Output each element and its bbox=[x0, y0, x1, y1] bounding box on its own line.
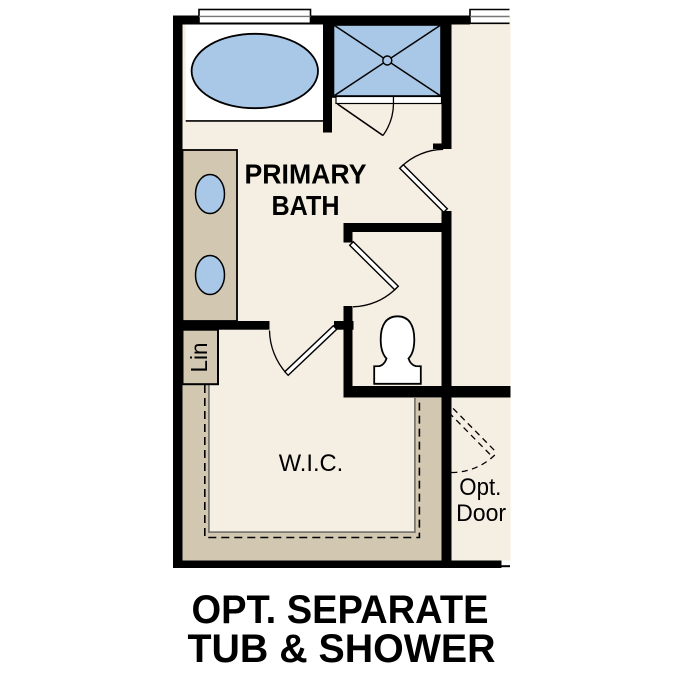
svg-text:OPT. SEPARATE: OPT. SEPARATE bbox=[192, 588, 489, 632]
svg-text:W.I.C.: W.I.C. bbox=[279, 450, 344, 477]
svg-text:PRIMARY: PRIMARY bbox=[245, 159, 367, 190]
svg-text:Opt.: Opt. bbox=[459, 474, 501, 501]
svg-text:Door: Door bbox=[456, 500, 506, 527]
svg-text:TUB & SHOWER: TUB & SHOWER bbox=[188, 627, 496, 671]
svg-text:Lin: Lin bbox=[186, 343, 212, 373]
svg-text:BATH: BATH bbox=[272, 190, 340, 221]
